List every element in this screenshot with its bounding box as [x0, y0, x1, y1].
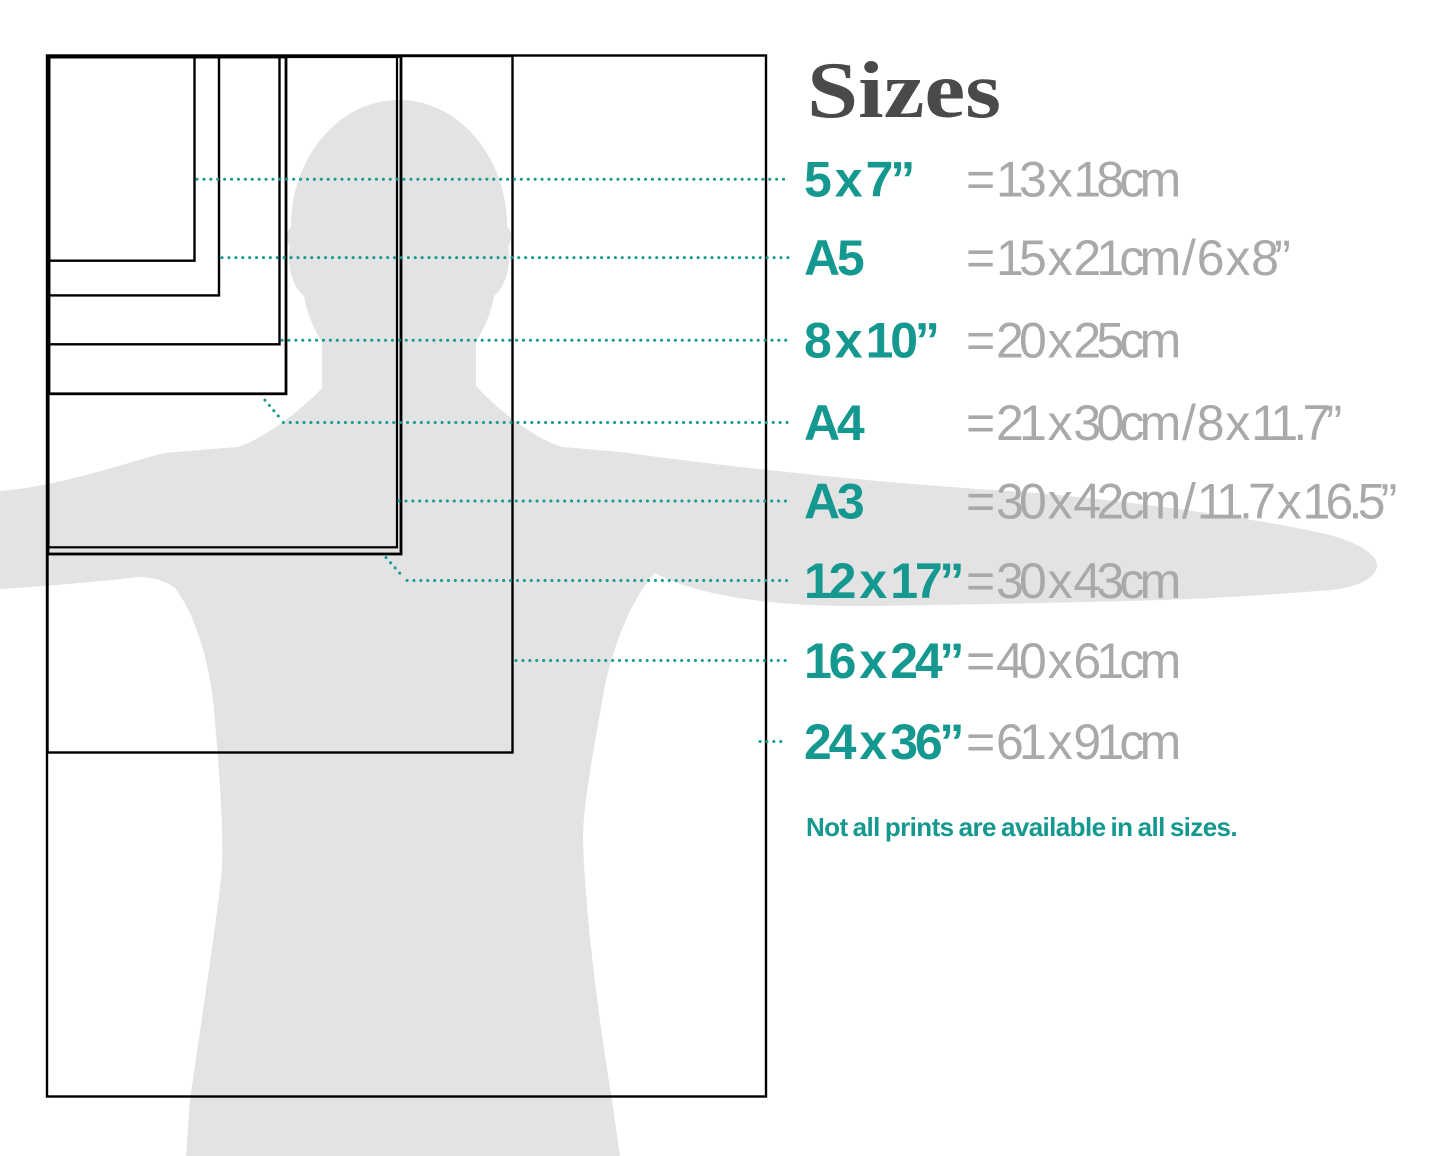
svg-text:= 15 x 21cm / 6 x 8”: = 15 x 21cm / 6 x 8”: [966, 230, 1289, 286]
svg-text:5 x 7”: 5 x 7”: [804, 152, 912, 208]
svg-text:24 x 36”: 24 x 36”: [804, 714, 961, 770]
svg-text:16 x 24”: 16 x 24”: [804, 633, 961, 689]
svg-text:A5: A5: [804, 230, 864, 286]
svg-text:= 21 x 30cm / 8 x 11.7”: = 21 x 30cm / 8 x 11.7”: [966, 395, 1341, 451]
svg-text:= 13 x 18cm: = 13 x 18cm: [966, 152, 1179, 208]
svg-text:= 30 x 43cm: = 30 x 43cm: [966, 553, 1179, 609]
svg-text:= 30 x 42cm / 11.7 x 16.5”: = 30 x 42cm / 11.7 x 16.5”: [966, 473, 1396, 529]
svg-text:A3: A3: [804, 473, 863, 529]
svg-text:Not all prints are available i: Not all prints are available in all size…: [806, 812, 1237, 842]
svg-text:12 x 17”: 12 x 17”: [804, 553, 961, 609]
svg-text:8 x 10”: 8 x 10”: [804, 313, 937, 369]
svg-text:= 20 x 25cm: = 20 x 25cm: [966, 313, 1179, 369]
svg-text:Sizes: Sizes: [807, 47, 1001, 135]
svg-text:A4: A4: [804, 395, 865, 451]
svg-text:= 61 x 91cm: = 61 x 91cm: [966, 714, 1179, 770]
svg-text:= 40 x 61cm: = 40 x 61cm: [966, 633, 1179, 689]
